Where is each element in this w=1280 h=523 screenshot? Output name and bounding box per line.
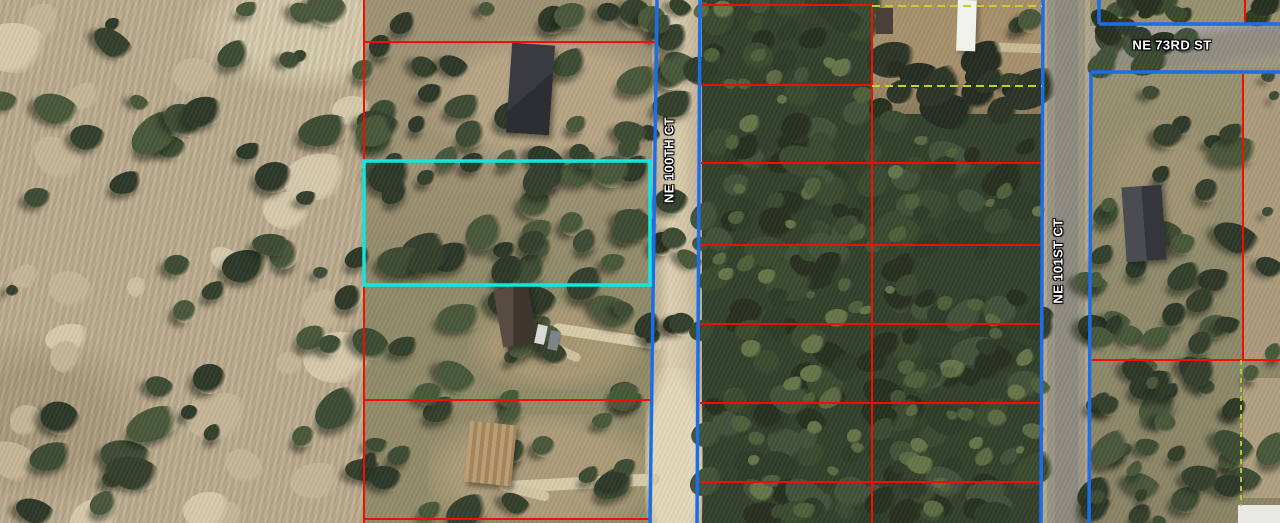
parcel-overlay — [0, 0, 1280, 523]
map-viewport[interactable]: NE 100TH CT NE 101ST CT NE 73RD ST — [0, 0, 1280, 523]
row-boundary-line — [1041, 0, 1043, 523]
road-label-ne-73rd-st: NE 73RD ST — [1132, 38, 1211, 53]
row-boundary-line — [697, 0, 700, 523]
road-label-ne-101st-ct: NE 101ST CT — [1051, 218, 1066, 303]
row-boundary-line — [1089, 72, 1091, 523]
selected-parcel-outline[interactable] — [364, 161, 650, 285]
road-label-ne-100th-ct: NE 100TH CT — [662, 117, 677, 203]
